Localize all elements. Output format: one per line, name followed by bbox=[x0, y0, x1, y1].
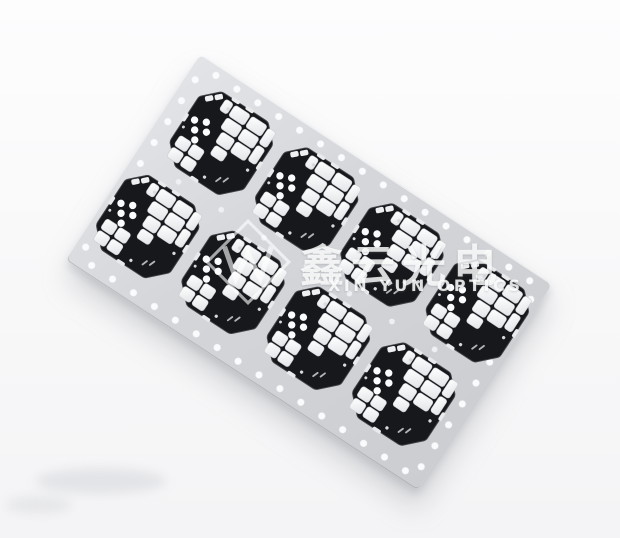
floor-smudge bbox=[36, 468, 166, 494]
pcb-carrier-panel bbox=[66, 54, 552, 490]
product-photo: 鑫云光电 XIN YUN OPTICS bbox=[0, 0, 620, 538]
floor-smudge bbox=[6, 496, 72, 514]
